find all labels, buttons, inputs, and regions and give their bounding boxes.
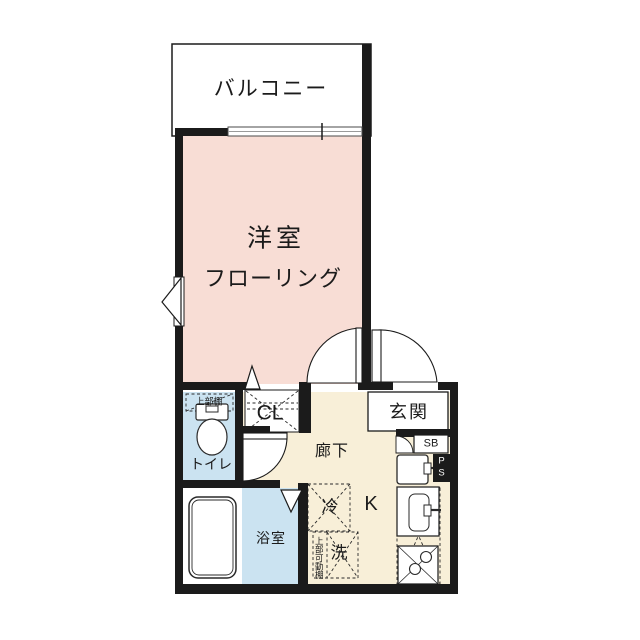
pipe-space-line1: P [438, 457, 444, 467]
toilet-shelf-label: 上部棚 [195, 398, 222, 407]
main-room-door-leaf [356, 328, 362, 383]
kitchen-faucet-icon [424, 505, 431, 516]
closet-label: CL [257, 403, 284, 424]
wall [235, 390, 243, 487]
wall [175, 480, 280, 488]
washstand-faucet-icon [424, 463, 431, 474]
shoebox-label: SB [424, 439, 439, 450]
pipe-space-line2: S [438, 468, 444, 478]
bathtub-icon [189, 497, 236, 578]
balcony-label: バルコニー [214, 79, 329, 100]
pipe-space-label: P S [438, 457, 444, 478]
toilet-door-leaf [243, 433, 287, 439]
stove-burner-icon [410, 564, 421, 575]
side-window-triangle-icon [162, 278, 181, 325]
toilet-label: トイレ [190, 457, 232, 471]
wall [175, 584, 458, 594]
wall [175, 128, 228, 136]
entrance-label: 玄関 [389, 403, 429, 421]
toilet-bowl-icon [197, 419, 227, 455]
floorplan-canvas: バルコニー 洋室 フローリング 玄関 廊下 トイレ 上部棚 CL 浴室 K 冷 … [0, 0, 640, 640]
main-room-label: 洋室 [247, 227, 305, 252]
stove-burner-icon [421, 552, 432, 563]
wall [362, 44, 371, 384]
bathroom-label: 浴室 [256, 531, 286, 545]
entrance-door-arc [378, 330, 437, 382]
washer-label: 洗 [331, 545, 348, 562]
hallway-label: 廊下 [315, 444, 349, 460]
wall [450, 382, 458, 594]
toilet-flush-icon [206, 406, 218, 412]
main-room-sublabel: フローリング [204, 268, 342, 290]
wall [175, 128, 183, 594]
washer-shelf-label: 上部可動棚 [315, 537, 324, 580]
washstand-icon [397, 455, 428, 484]
wall [175, 382, 247, 390]
wall [438, 382, 458, 390]
entrance-door-leaf [372, 330, 381, 382]
wall [358, 382, 393, 390]
wall [298, 483, 308, 594]
kitchen-label: K [364, 494, 377, 514]
wall [299, 382, 311, 433]
refrigerator-label: 冷 [322, 499, 339, 516]
